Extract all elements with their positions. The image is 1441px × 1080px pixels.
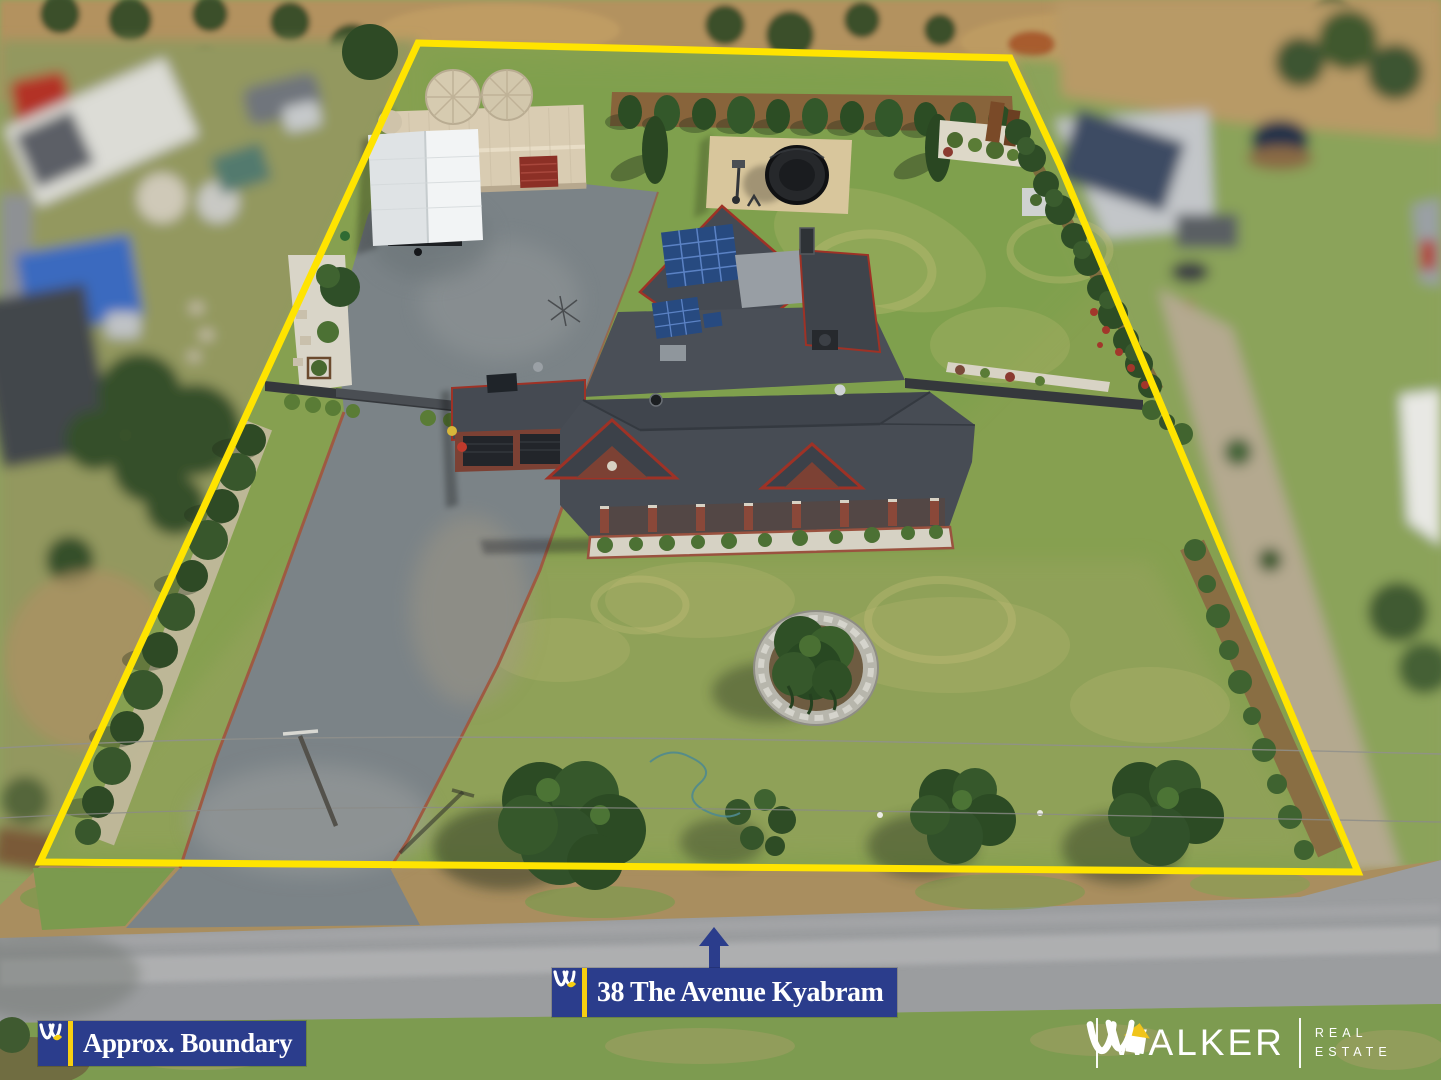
walker-mini-logo-icon	[552, 968, 582, 1017]
solar-hot-water	[486, 373, 517, 393]
address-text: 38 The Avenue Kyabram	[587, 977, 897, 1009]
brand-divider	[1299, 1018, 1301, 1068]
garage-door	[463, 436, 513, 466]
motorbike	[414, 248, 422, 256]
brand-division-line2: ESTATE	[1315, 1043, 1392, 1062]
yellow-bin	[447, 426, 457, 436]
wheelie-bin	[340, 231, 350, 241]
solar-panel-array	[661, 224, 739, 288]
red-bin	[457, 442, 467, 452]
address-pointer-arrow	[699, 927, 729, 970]
carport	[368, 129, 483, 256]
brand-division: REAL ESTATE	[1315, 1024, 1392, 1063]
approx-boundary-banner: Approx. Boundary	[38, 1021, 306, 1066]
flue	[650, 394, 662, 406]
aerial-photograph	[0, 0, 1441, 1080]
chimney	[800, 228, 814, 254]
basketball-hoop	[737, 166, 739, 198]
arrow-head	[699, 927, 729, 946]
sprinkler	[877, 812, 883, 818]
arrow-stem	[709, 945, 720, 970]
address-banner: 38 The Avenue Kyabram	[552, 968, 897, 1017]
sprinkler	[1037, 810, 1043, 816]
brand-division-line1: REAL	[1315, 1024, 1392, 1043]
listing-photo-page: 38 The Avenue Kyabram Approx. Boundary W…	[0, 0, 1441, 1080]
approx-boundary-text: Approx. Boundary	[73, 1028, 306, 1059]
roof-vent	[533, 362, 543, 372]
satellite-dish	[835, 385, 846, 396]
brand-divider	[1096, 1018, 1098, 1068]
walker-mini-logo-icon	[38, 1021, 68, 1066]
tall-pine	[642, 116, 668, 184]
walker-brand-logo-icon	[1082, 1012, 1160, 1070]
play-area	[694, 134, 852, 218]
agency-brand-footer: WALKER REAL ESTATE	[1082, 1012, 1392, 1074]
